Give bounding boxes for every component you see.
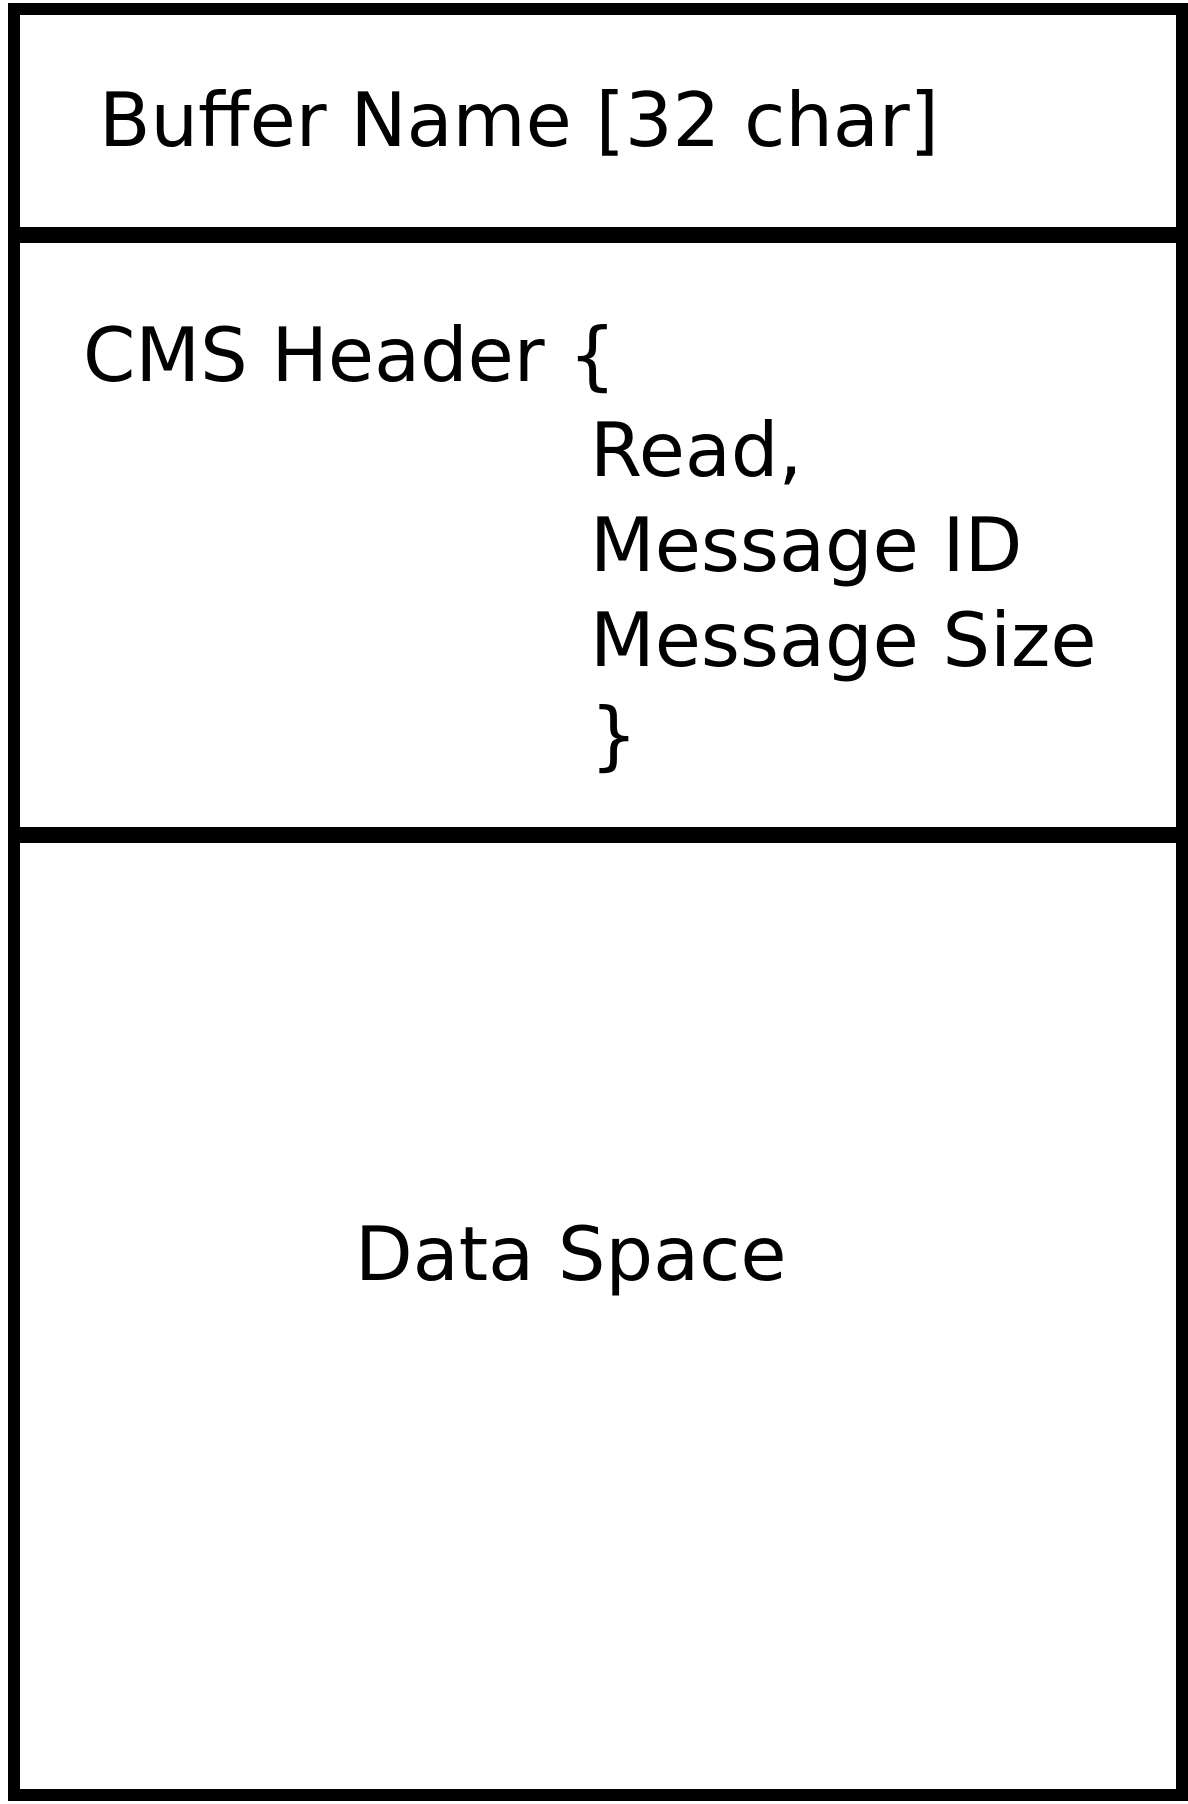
divider-cms-header-data-space bbox=[20, 827, 1176, 843]
cms-header-field-read: Read, bbox=[20, 403, 1176, 498]
section-cms-header: CMS Header { Read, Message ID Message Si… bbox=[20, 243, 1176, 827]
cms-header-field-message-size: Message Size bbox=[20, 593, 1176, 688]
data-space-label: Data Space bbox=[355, 1210, 786, 1298]
buffer-structure-diagram: Buffer Name [32 char] CMS Header { Read,… bbox=[8, 3, 1188, 1801]
section-data-space: Data Space bbox=[20, 843, 1176, 1789]
divider-buffer-name-cms-header bbox=[20, 227, 1176, 243]
cms-header-open-label: CMS Header { bbox=[20, 308, 1176, 403]
buffer-name-label: Buffer Name [32 char] bbox=[99, 77, 939, 165]
cms-header-close-brace: } bbox=[20, 688, 1176, 783]
cms-header-field-message-id: Message ID bbox=[20, 498, 1176, 593]
section-buffer-name: Buffer Name [32 char] bbox=[20, 15, 1176, 227]
